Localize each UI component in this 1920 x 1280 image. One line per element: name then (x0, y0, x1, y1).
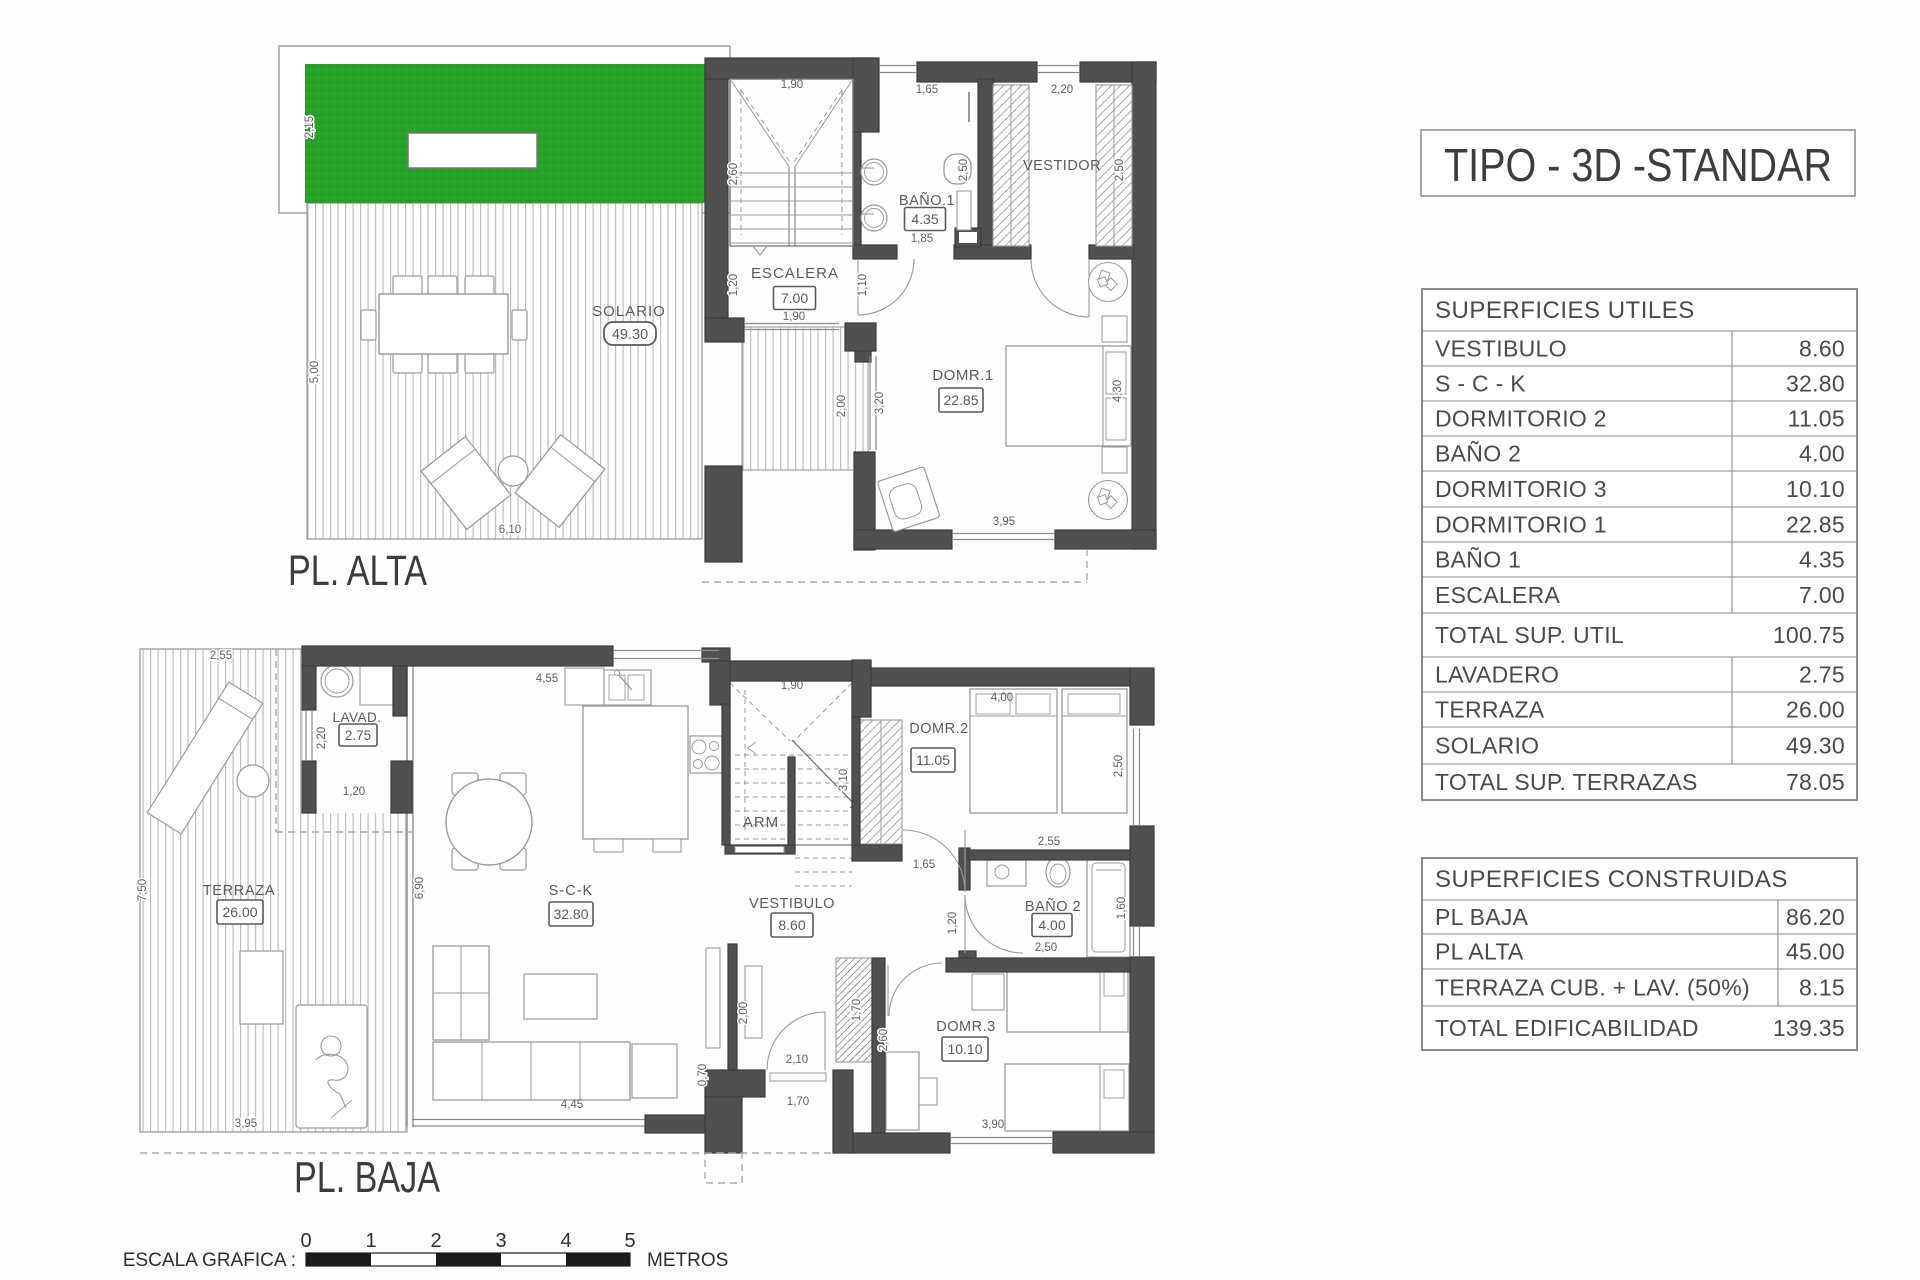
svg-text:10.10: 10.10 (1786, 476, 1845, 502)
svg-text:4,45: 4,45 (561, 1099, 583, 1111)
svg-text:3,10: 3,10 (838, 769, 850, 791)
svg-text:1: 1 (365, 1230, 376, 1252)
svg-text:4.35: 4.35 (1799, 547, 1845, 573)
svg-text:TOTAL SUP. UTIL: TOTAL SUP. UTIL (1435, 622, 1624, 648)
svg-text:4.00: 4.00 (1799, 441, 1845, 467)
svg-text:TERRAZA: TERRAZA (1435, 697, 1545, 723)
svg-text:8.15: 8.15 (1799, 975, 1845, 1001)
svg-text:32.80: 32.80 (553, 906, 588, 922)
svg-text:2,50: 2,50 (1035, 942, 1057, 954)
svg-text:49.30: 49.30 (612, 327, 648, 343)
svg-text:2,55: 2,55 (1038, 836, 1060, 848)
svg-text:1,20: 1,20 (947, 912, 959, 934)
svg-text:45.00: 45.00 (1786, 939, 1845, 965)
svg-text:4.35: 4.35 (911, 211, 938, 227)
svg-text:10.10: 10.10 (947, 1041, 982, 1057)
svg-text:1,60: 1,60 (1116, 897, 1128, 919)
svg-text:1,10: 1,10 (857, 274, 869, 296)
svg-text:PL BAJA: PL BAJA (1435, 904, 1529, 930)
svg-text:TIPO - 3D -STANDAR: TIPO - 3D -STANDAR (1444, 139, 1832, 191)
svg-text:S-C-K: S-C-K (549, 883, 593, 899)
svg-text:1,90: 1,90 (781, 79, 803, 91)
svg-text:78.05: 78.05 (1786, 769, 1845, 795)
svg-text:4: 4 (560, 1230, 571, 1252)
svg-text:PL ALTA: PL ALTA (1435, 939, 1524, 965)
svg-text:49.30: 49.30 (1786, 733, 1845, 759)
svg-text:4,30: 4,30 (1112, 380, 1124, 402)
svg-text:86.20: 86.20 (1786, 904, 1845, 930)
svg-text:1,20: 1,20 (343, 786, 365, 798)
svg-text:0,70: 0,70 (697, 1064, 709, 1086)
svg-text:2,00: 2,00 (836, 395, 848, 417)
svg-text:2.75: 2.75 (1799, 662, 1845, 688)
svg-text:26.00: 26.00 (1786, 697, 1845, 723)
svg-text:4.00: 4.00 (1038, 917, 1065, 933)
svg-text:8.60: 8.60 (1799, 336, 1845, 362)
svg-text:22.85: 22.85 (1786, 512, 1845, 538)
svg-text:DOMR.3: DOMR.3 (936, 1019, 995, 1035)
svg-text:PL. BAJA: PL. BAJA (294, 1153, 441, 1202)
svg-text:3: 3 (495, 1230, 506, 1252)
svg-text:26.00: 26.00 (222, 904, 257, 920)
svg-text:2,60: 2,60 (878, 1029, 890, 1051)
svg-text:LAVADERO: LAVADERO (1435, 662, 1559, 688)
svg-text:METROS: METROS (647, 1250, 728, 1271)
svg-text:DOMR.1: DOMR.1 (932, 367, 993, 384)
svg-text:LAVAD.: LAVAD. (332, 710, 381, 725)
svg-text:DORMITORIO 2: DORMITORIO 2 (1435, 406, 1607, 432)
svg-text:7,50: 7,50 (137, 879, 149, 901)
svg-text:VESTIBULO: VESTIBULO (749, 896, 835, 912)
svg-text:1,85: 1,85 (911, 233, 933, 245)
svg-text:2,50: 2,50 (1114, 159, 1126, 181)
svg-text:0: 0 (300, 1230, 311, 1252)
svg-text:ESCALERA: ESCALERA (1435, 582, 1560, 608)
svg-text:2,15: 2,15 (304, 116, 316, 138)
svg-text:139.35: 139.35 (1773, 1015, 1845, 1041)
svg-text:2,50: 2,50 (1113, 755, 1125, 777)
svg-text:DOMR.2: DOMR.2 (909, 721, 968, 737)
svg-text:S - C - K: S - C - K (1435, 371, 1526, 397)
svg-text:2.75: 2.75 (345, 728, 371, 743)
svg-text:8.60: 8.60 (778, 917, 805, 933)
svg-text:ESCALERA: ESCALERA (751, 265, 839, 282)
svg-text:VESTIBULO: VESTIBULO (1435, 336, 1567, 362)
svg-text:4,55: 4,55 (536, 673, 558, 685)
svg-text:7.00: 7.00 (1799, 582, 1845, 608)
svg-text:BAÑO 2: BAÑO 2 (1435, 441, 1521, 467)
svg-text:SUPERFICIES UTILES: SUPERFICIES UTILES (1435, 297, 1695, 324)
svg-text:100.75: 100.75 (1773, 622, 1845, 648)
svg-text:3,95: 3,95 (235, 1118, 257, 1130)
svg-text:DORMITORIO 3: DORMITORIO 3 (1435, 476, 1607, 502)
svg-text:VESTIDOR: VESTIDOR (1023, 158, 1101, 174)
svg-text:SOLARIO: SOLARIO (1435, 733, 1539, 759)
svg-text:22.85: 22.85 (943, 392, 978, 408)
svg-text:ESCALA GRAFICA :: ESCALA GRAFICA : (123, 1250, 296, 1271)
svg-text:4,00: 4,00 (991, 692, 1013, 704)
svg-text:PL. ALTA: PL. ALTA (288, 547, 427, 595)
svg-text:TERRAZA: TERRAZA (203, 883, 276, 899)
svg-text:11.05: 11.05 (1788, 406, 1845, 432)
svg-text:5,00: 5,00 (309, 361, 321, 383)
svg-text:BAÑO.1: BAÑO.1 (899, 192, 955, 209)
svg-text:11.05: 11.05 (916, 752, 950, 768)
svg-text:2,50: 2,50 (958, 159, 970, 181)
svg-text:3,95: 3,95 (993, 516, 1015, 528)
svg-text:2,55: 2,55 (210, 650, 232, 662)
svg-text:BAÑO 2: BAÑO 2 (1025, 898, 1081, 915)
svg-text:TERRAZA CUB. + LAV. (50%): TERRAZA CUB. + LAV. (50%) (1435, 975, 1750, 1001)
svg-text:DORMITORIO 1: DORMITORIO 1 (1435, 512, 1607, 538)
svg-text:2,20: 2,20 (1051, 84, 1073, 96)
svg-text:5: 5 (624, 1230, 635, 1252)
svg-text:1,90: 1,90 (781, 680, 803, 692)
svg-text:2,10: 2,10 (786, 1054, 808, 1066)
svg-text:SUPERFICIES CONSTRUIDAS: SUPERFICIES CONSTRUIDAS (1435, 866, 1788, 893)
svg-text:1,65: 1,65 (913, 859, 935, 871)
svg-text:1,70: 1,70 (851, 999, 863, 1021)
svg-text:1,70: 1,70 (787, 1096, 809, 1108)
svg-text:1,65: 1,65 (916, 84, 938, 96)
svg-text:32.80: 32.80 (1786, 371, 1845, 397)
svg-text:7.00: 7.00 (781, 290, 808, 306)
svg-text:1,90: 1,90 (783, 311, 805, 323)
svg-text:2,60: 2,60 (728, 163, 740, 185)
svg-text:TOTAL SUP. TERRAZAS: TOTAL SUP. TERRAZAS (1435, 769, 1698, 795)
svg-text:1,20: 1,20 (728, 274, 740, 296)
svg-text:6,90: 6,90 (414, 877, 426, 899)
svg-text:ARM: ARM (743, 814, 779, 831)
svg-text:2: 2 (430, 1230, 441, 1252)
svg-text:SOLARIO: SOLARIO (592, 303, 666, 320)
svg-text:3,20: 3,20 (874, 392, 886, 414)
svg-text:BAÑO 1: BAÑO 1 (1435, 547, 1521, 573)
svg-text:6,10: 6,10 (499, 524, 521, 536)
svg-text:2,20: 2,20 (316, 727, 328, 749)
svg-text:3,90: 3,90 (982, 1119, 1004, 1131)
svg-text:TOTAL EDIFICABILIDAD: TOTAL EDIFICABILIDAD (1435, 1015, 1699, 1041)
svg-text:2,00: 2,00 (738, 1002, 750, 1024)
